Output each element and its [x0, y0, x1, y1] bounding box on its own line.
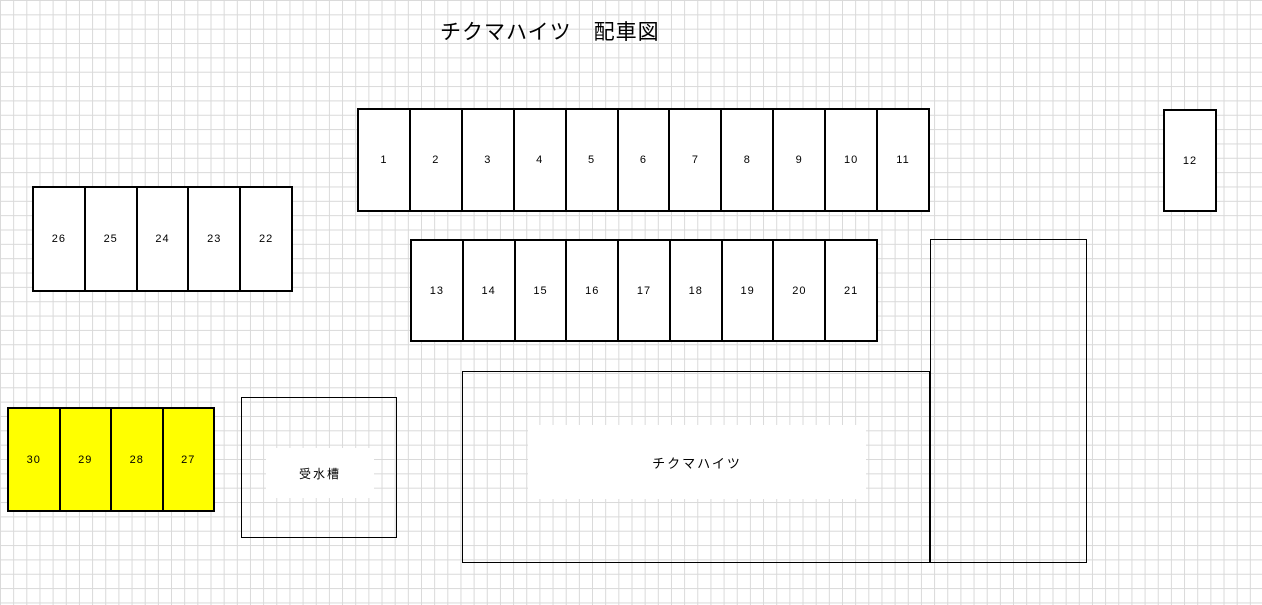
parking-space: 1: [359, 110, 409, 210]
parking-row-27-30-highlighted: 30 29 28 27: [7, 407, 215, 512]
parking-space: 19: [721, 241, 773, 340]
parking-space: 26: [34, 188, 84, 290]
parking-space: 2: [409, 110, 461, 210]
parking-space: 6: [617, 110, 669, 210]
parking-space: 12: [1165, 111, 1215, 210]
building-outline: チクマハイツ: [462, 371, 930, 563]
parking-space-highlighted: 30: [9, 409, 59, 510]
parking-space: 13: [412, 241, 462, 340]
parking-space: 25: [84, 188, 136, 290]
parking-space: 10: [824, 110, 876, 210]
parking-space: 18: [669, 241, 721, 340]
water-tank-outline: 受水槽: [241, 397, 397, 538]
water-tank-label: 受水槽: [266, 448, 374, 498]
parking-space: 21: [824, 241, 876, 340]
parking-space: 3: [461, 110, 513, 210]
parking-row-22-26: 26 25 24 23 22: [32, 186, 293, 292]
parking-space: 8: [720, 110, 772, 210]
parking-space-highlighted: 27: [162, 409, 214, 510]
unlabeled-structure-outline: [930, 239, 1087, 563]
parking-diagram-canvas: チクマハイツ 配車図 1 2 3 4 5 6 7 8 9 10 11 12 26…: [0, 0, 1262, 605]
parking-space: 24: [136, 188, 188, 290]
parking-row-12: 12: [1163, 109, 1217, 212]
parking-space-highlighted: 28: [110, 409, 162, 510]
parking-row-13-21: 13 14 15 16 17 18 19 20 21: [410, 239, 878, 342]
parking-space: 11: [876, 110, 928, 210]
parking-space: 17: [617, 241, 669, 340]
parking-space: 4: [513, 110, 565, 210]
parking-space: 23: [187, 188, 239, 290]
parking-space: 5: [565, 110, 617, 210]
building-label: チクマハイツ: [528, 425, 866, 499]
parking-space-highlighted: 29: [59, 409, 111, 510]
diagram-title: チクマハイツ 配車図: [440, 21, 660, 44]
parking-space: 7: [668, 110, 720, 210]
parking-space: 9: [772, 110, 824, 210]
parking-space: 20: [772, 241, 824, 340]
parking-space: 22: [239, 188, 291, 290]
parking-space: 14: [462, 241, 514, 340]
parking-row-1-11: 1 2 3 4 5 6 7 8 9 10 11: [357, 108, 930, 212]
parking-space: 15: [514, 241, 566, 340]
parking-space: 16: [565, 241, 617, 340]
